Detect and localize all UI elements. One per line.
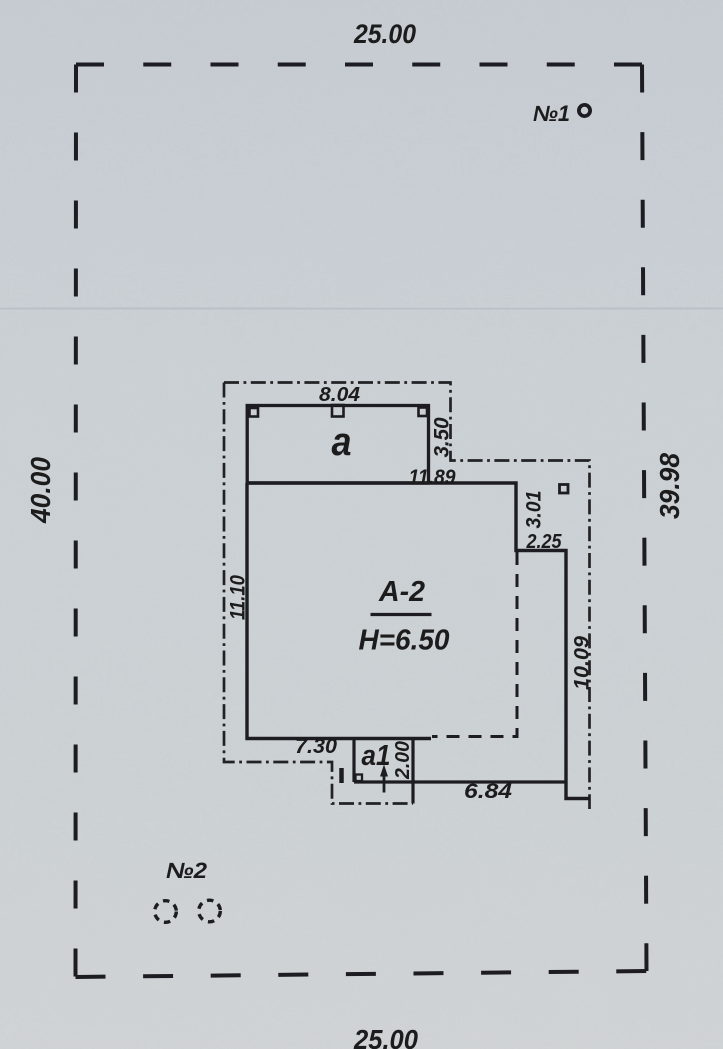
svg-text:2.25: 2.25: [526, 530, 562, 553]
svg-text:3.01: 3.01: [523, 491, 546, 529]
svg-text:A-2: A-2: [378, 576, 425, 608]
svg-text:39.98: 39.98: [654, 453, 685, 519]
svg-text:25.00: 25.00: [353, 1024, 418, 1049]
svg-text:2.00: 2.00: [391, 740, 414, 780]
svg-text:25.00: 25.00: [353, 19, 416, 49]
svg-text:6.84: 6.84: [464, 780, 512, 803]
svg-text:№2: №2: [166, 858, 208, 883]
svg-text:40.00: 40.00: [25, 457, 56, 524]
svg-text:11.10: 11.10: [226, 575, 250, 620]
svg-text:a1: a1: [362, 740, 391, 772]
svg-text:№1: №1: [533, 101, 570, 126]
svg-text:10.09: 10.09: [570, 636, 594, 690]
svg-text:11.89: 11.89: [409, 465, 456, 489]
svg-text:a: a: [332, 420, 352, 464]
svg-text:8.04: 8.04: [319, 383, 361, 406]
svg-text:7.30: 7.30: [295, 735, 337, 758]
svg-text:3.50: 3.50: [431, 417, 454, 457]
svg-text:H=6.50: H=6.50: [359, 625, 450, 657]
